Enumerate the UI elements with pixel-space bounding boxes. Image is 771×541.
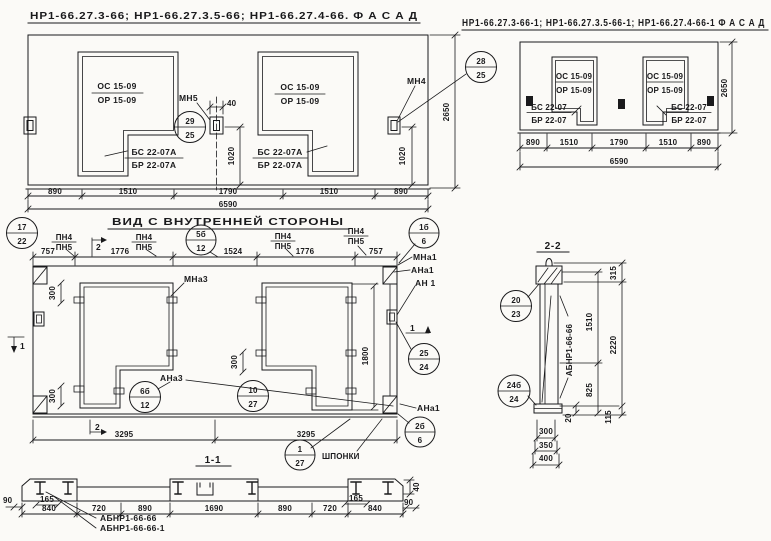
dim-2220: 2220 (609, 335, 618, 354)
anchor-label-an1: АН 1 (415, 278, 436, 288)
dim: 757 (369, 247, 383, 256)
panel-mark: АБНР1-66-66-1 (100, 523, 165, 533)
callout-text: 10 (248, 386, 258, 395)
callout-text: 24 (509, 395, 519, 404)
facade-left-linework (24, 23, 497, 212)
callout-text: 24 (419, 363, 429, 372)
dim-300: 300 (230, 355, 239, 369)
dim-400: 400 (539, 454, 553, 463)
dim: 840 (42, 504, 56, 513)
opening-mark: ОС 15-09 (97, 81, 136, 91)
callout-text: 23 (511, 310, 521, 319)
dim-20: 20 (564, 413, 573, 423)
partition-mark: ПН4 (56, 233, 73, 242)
dim-3295: 3295 (297, 430, 316, 439)
lifting-loop-icon (546, 259, 552, 267)
dim: 1790 (610, 138, 629, 147)
partition-mark: ПН4 (136, 233, 153, 242)
opening-mark: ОС 15-09 (647, 72, 684, 81)
anchor-mark-icon (618, 99, 625, 109)
dim-165: 165 (40, 495, 54, 504)
partition-mark: ПН5 (136, 243, 153, 252)
channel-anchor-icons (35, 482, 393, 494)
anchor-label-ana1b: АНа1 (417, 403, 440, 413)
anchor-label-ana1: АНа1 (411, 265, 434, 275)
callout-text: 2б (415, 422, 425, 431)
dim-40: 40 (412, 482, 421, 492)
callout-text: 17 (17, 223, 27, 232)
dim-315: 315 (609, 266, 618, 280)
callout-text: 20 (511, 296, 521, 305)
partition-mark: ПН4 (275, 232, 292, 241)
dim: 1790 (219, 187, 238, 196)
callout-text: 25 (185, 131, 195, 140)
facade-left-view: НР1-66.27.3-66; НР1-66.27.3.5-66; НР1-66… (24, 11, 497, 212)
dim-90: 90 (404, 498, 414, 507)
section-mark-1: 1 (410, 323, 415, 333)
callout-text: 28 (476, 57, 486, 66)
dim: 1776 (296, 247, 315, 256)
dim: 1690 (205, 504, 224, 513)
sill-mark: БС 22-07 (531, 103, 567, 112)
facade-left-title: НР1-66.27.3-66; НР1-66.27.3.5-66; НР1-66… (30, 11, 418, 22)
facade-right-title: НР1-66.27.3-66-1; НР1-66.27.3.5-66-1; НР… (462, 18, 765, 29)
sill-mark: БС 22-07А (257, 147, 302, 157)
dim: 890 (526, 138, 540, 147)
dim-1020: 1020 (398, 146, 407, 165)
dim: 890 (697, 138, 711, 147)
callout-text: 25 (419, 349, 429, 358)
opening-left-outline (78, 52, 178, 176)
dim-1800: 1800 (361, 346, 370, 365)
facade-right-view: НР1-66.27.3-66-1; НР1-66.27.3.5-66-1; НР… (462, 18, 768, 170)
inner-view-title: ВИД С ВНУТРЕННЕЙ СТОРОНЫ (112, 215, 344, 228)
callout-text: 6б (140, 387, 150, 396)
dim: 1510 (659, 138, 678, 147)
sill-mark: БР 22-07А (258, 160, 303, 170)
dim: 757 (41, 247, 55, 256)
panel-mark: АБНР1-66-66 (565, 323, 574, 376)
callout-text: 12 (196, 244, 206, 253)
call-text: 6 (418, 436, 423, 445)
sill-mark: БС 22-07 (671, 103, 707, 112)
partition-mark: ПН5 (275, 242, 292, 251)
callout-text: 24б (507, 381, 521, 390)
inner-view-labels: ВИД С ВНУТРЕННЕЙ СТОРОНЫ 757 1776 1524 1… (17, 215, 440, 468)
panel-mark: АБНР1-66-66 (100, 513, 157, 523)
callout-text: 6 (422, 237, 427, 246)
callout-text: 25 (476, 71, 486, 80)
dim-115: 115 (604, 410, 613, 424)
dim: 1510 (119, 187, 138, 196)
opening-mark: ОР 15-09 (281, 96, 320, 106)
anchor-label-mna1: МНа1 (413, 252, 437, 262)
dim-2650: 2650 (720, 78, 729, 97)
dim: 720 (323, 504, 337, 513)
dim-825: 825 (585, 383, 594, 397)
sill-mark: БС 22-07А (131, 147, 176, 157)
anchor-label-mn4: МН4 (407, 76, 426, 86)
callout-text: 1б (419, 223, 429, 232)
keys-label: ШПОНКИ (322, 452, 360, 461)
edge-anchors (34, 310, 397, 326)
dim-40: 40 (227, 99, 237, 108)
channel-groove-icon (197, 483, 213, 495)
opening-right-outline (258, 52, 358, 176)
partition-mark: ПН5 (348, 237, 365, 246)
callout-text: 27 (295, 459, 305, 468)
dim: 1776 (111, 247, 130, 256)
dim-2650: 2650 (442, 102, 451, 121)
section-2-2: 2-2 АБНР1-66-66 315 1510 2220 825 20 115… (498, 241, 626, 468)
dim-1020: 1020 (227, 146, 236, 165)
dim-300: 300 (48, 389, 57, 403)
callout-text: 22 (17, 237, 27, 246)
anchor-label-mn5: МН5 (179, 93, 198, 103)
dim-300: 300 (539, 427, 553, 436)
opening-mark: ОР 15-09 (647, 86, 683, 95)
dim: 890 (48, 187, 62, 196)
dim-3295: 3295 (115, 430, 134, 439)
sill-mark: БР 22-07А (132, 160, 177, 170)
anchor-right-edge-icon (388, 117, 400, 134)
dim: 720 (92, 504, 106, 513)
opening-mark: ОС 15-09 (556, 72, 593, 81)
callout-text: 27 (248, 400, 258, 409)
anchor-mark-icon (707, 96, 714, 106)
dim-165: 165 (349, 494, 363, 503)
dim: 890 (138, 504, 152, 513)
callout-text: 5б (196, 230, 206, 239)
sill-mark: БР 22-07 (531, 116, 567, 125)
dim: 890 (278, 504, 292, 513)
facade-right-labels: НР1-66.27.3-66-1; НР1-66.27.3.5-66-1; НР… (462, 18, 765, 166)
callout-text: 12 (140, 401, 150, 410)
facade-right-linework (462, 30, 768, 170)
dim-350: 350 (539, 441, 553, 450)
dim: 890 (394, 187, 408, 196)
dim-total: 6590 (219, 200, 238, 209)
partition-mark: ПН5 (56, 243, 73, 252)
partition-mark: ПН4 (348, 227, 365, 236)
dim: 840 (368, 504, 382, 513)
section-mark-2: 2 (96, 242, 101, 252)
opening-mark: ОР 15-09 (98, 95, 137, 105)
opening-mark: ОС 15-09 (280, 82, 319, 92)
anchor-label-mna3: МНа3 (184, 274, 208, 284)
corner-corbels (33, 267, 397, 413)
anchor-left-edge-icon (24, 117, 36, 134)
dim-total: 6590 (610, 157, 629, 166)
dim: 1510 (320, 187, 339, 196)
section-mark-2: 2 (95, 422, 100, 432)
dim: 1510 (560, 138, 579, 147)
callout-text: 1 (298, 445, 303, 454)
section-1-1: 1-1 840 720 890 1690 890 720 840 90 90 1… (3, 455, 421, 533)
anchor-label-ana3: АНа3 (160, 373, 183, 383)
drawing-sheet: НР1-66.27.3-66; НР1-66.27.3.5-66; НР1-66… (0, 0, 771, 541)
dim-1510: 1510 (585, 312, 594, 331)
section-2-2-linework (498, 252, 626, 468)
inner-opening-left (80, 283, 173, 408)
inner-side-view: ВИД С ВНУТРЕННЕЙ СТОРОНЫ 757 1776 1524 1… (7, 215, 440, 470)
section-1-1-title: 1-1 (205, 455, 222, 466)
opening-mark: ОР 15-09 (556, 86, 592, 95)
sill-mark: БР 22-07 (671, 116, 707, 125)
callout-text: 29 (185, 117, 195, 126)
dim-300: 300 (48, 286, 57, 300)
dim: 1524 (224, 247, 243, 256)
dim-90: 90 (3, 496, 13, 505)
section-mark-1: 1 (20, 341, 25, 351)
section-2-2-title: 2-2 (545, 241, 562, 252)
